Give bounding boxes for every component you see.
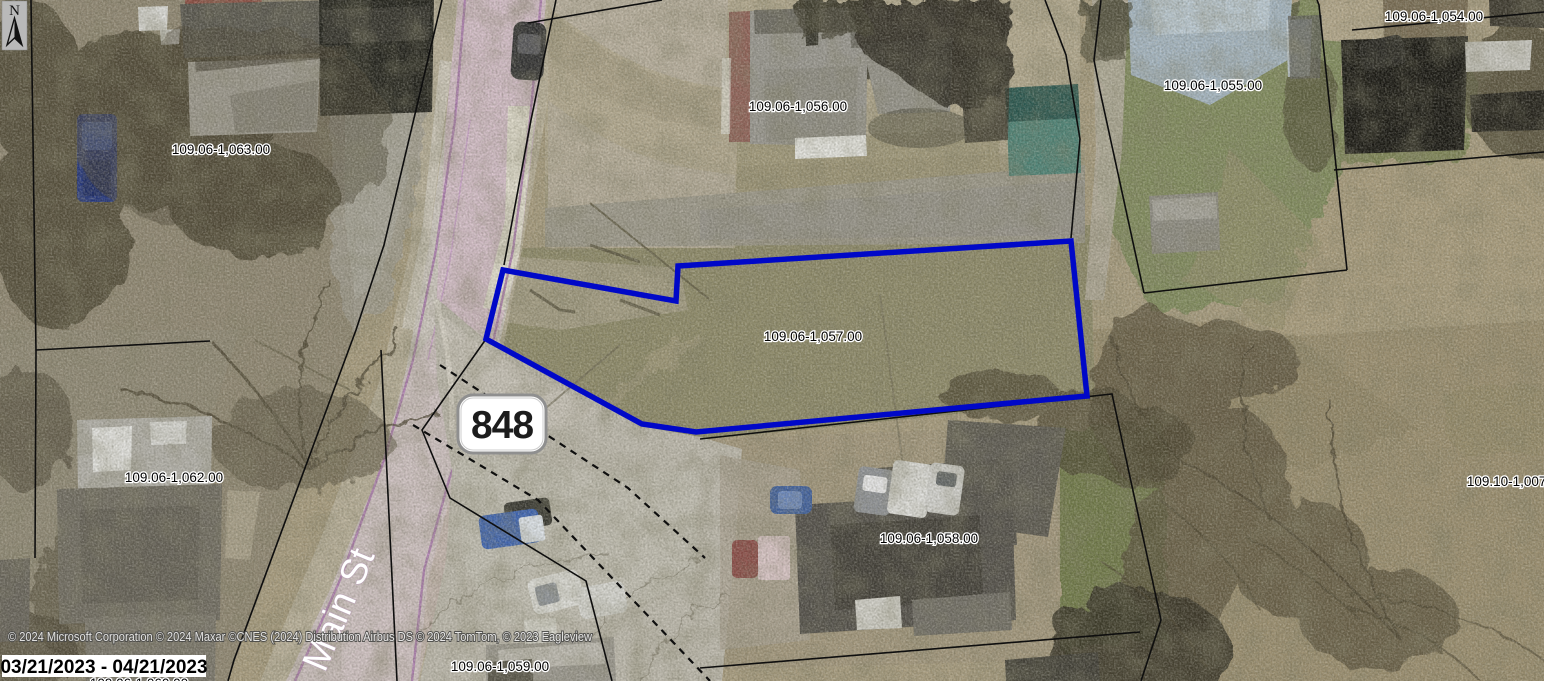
svg-text:© 2024 Microsoft Corporation: © 2024 Microsoft Corporation © 2024 Maxa… (8, 630, 593, 644)
svg-text:109.06-1,063.00: 109.06-1,063.00 (172, 142, 270, 157)
svg-text:109.06-1,054.00: 109.06-1,054.00 (1385, 9, 1483, 24)
svg-text:109.10-1,007.00: 109.10-1,007.00 (1467, 474, 1544, 489)
svg-text:109.06-1,059.00: 109.06-1,059.00 (451, 659, 549, 674)
svg-text:848: 848 (471, 404, 533, 447)
svg-text:109.06-1,055.00: 109.06-1,055.00 (1164, 78, 1262, 93)
svg-text:03/21/2023 - 04/21/2023: 03/21/2023 - 04/21/2023 (0, 657, 207, 678)
svg-text:109.06-1,056.00: 109.06-1,056.00 (749, 99, 847, 114)
svg-text:109.06-1,058.00: 109.06-1,058.00 (880, 531, 978, 546)
svg-text:109.06-1,057.00: 109.06-1,057.00 (764, 329, 862, 344)
svg-text:109.06-1,062.00: 109.06-1,062.00 (125, 470, 223, 485)
